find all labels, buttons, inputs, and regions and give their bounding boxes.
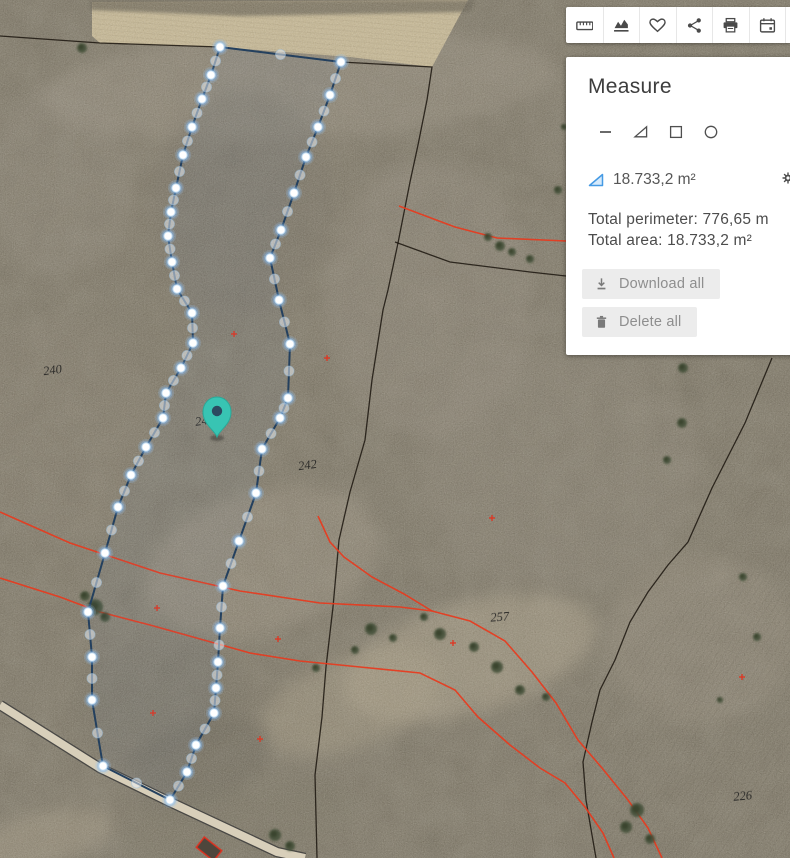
totals-block: Total perimeter: 776,65 m Total area: 18… [588, 209, 790, 251]
circle-tool-button[interactable] [703, 124, 719, 140]
polygon-vertex[interactable] [258, 445, 266, 453]
total-area: Total area: 18.733,2 m² [588, 230, 790, 251]
gear-icon[interactable] [781, 171, 790, 185]
polygon-midpoint-handle[interactable] [226, 559, 236, 569]
polygon-midpoint-handle[interactable] [270, 274, 280, 284]
elevation-chart-icon [613, 17, 630, 34]
polygon-vertex[interactable] [88, 653, 96, 661]
polygon-vertex[interactable] [189, 339, 197, 347]
toolbar-heart-button[interactable] [639, 7, 676, 43]
parcel-label-257: 257 [490, 609, 510, 624]
calendar-icon [759, 17, 776, 34]
polygon-vertex[interactable] [159, 414, 167, 422]
download-icon [594, 277, 609, 292]
polygon-vertex[interactable] [192, 741, 200, 749]
triangle-area-tool-button[interactable] [633, 124, 649, 140]
polygon-vertex[interactable] [179, 151, 187, 159]
measure-tools-row [598, 122, 790, 142]
polygon-midpoint-handle[interactable] [174, 781, 184, 791]
toolbar-elevation-chart-button[interactable] [603, 7, 640, 43]
total-area-value: 18.733,2 m² [667, 232, 752, 249]
polygon-midpoint-handle[interactable] [284, 366, 294, 376]
download-icon [594, 277, 609, 292]
polygon-midpoint-handle[interactable] [92, 578, 102, 588]
parcel-label-242: 242 [297, 457, 318, 473]
polygon-vertex[interactable] [216, 43, 224, 51]
polygon-vertex[interactable] [216, 624, 224, 632]
polygon-midpoint-handle[interactable] [180, 296, 190, 306]
polygon-midpoint-handle[interactable] [182, 351, 192, 361]
polygon-vertex[interactable] [284, 394, 292, 402]
polygon-vertex[interactable] [302, 153, 310, 161]
polygon-midpoint-handle[interactable] [107, 525, 117, 535]
polygon-midpoint-handle[interactable] [165, 244, 175, 254]
polygon-vertex[interactable] [173, 285, 181, 293]
total-perimeter: Total perimeter: 776,65 m [588, 209, 790, 230]
polygon-midpoint-handle[interactable] [243, 512, 253, 522]
polygon-vertex[interactable] [84, 608, 92, 616]
toolbar-ruler-button[interactable] [566, 7, 603, 43]
polygon-midpoint-handle[interactable] [214, 640, 224, 650]
polygon-midpoint-handle[interactable] [165, 219, 175, 229]
toolbar-calendar-button[interactable] [749, 7, 786, 43]
polygon-midpoint-handle[interactable] [280, 317, 290, 327]
polygon-vertex[interactable] [275, 296, 283, 304]
map-viewport: 24024242257226 Measure 18.733,2 m² Total… [0, 0, 790, 858]
polygon-vertex[interactable] [188, 309, 196, 317]
measure-panel: Measure 18.733,2 m² Total perimeter: 776… [566, 57, 790, 355]
polygon-midpoint-handle[interactable] [210, 696, 220, 706]
printer-icon [722, 17, 739, 34]
line-tool-icon [598, 124, 614, 140]
polygon-vertex[interactable] [88, 696, 96, 704]
measurement-value: 18.733,2 m² [613, 171, 696, 189]
polygon-midpoint-handle[interactable] [87, 674, 97, 684]
polygon-midpoint-handle[interactable] [331, 74, 341, 84]
parcel-label-226: 226 [733, 788, 754, 804]
polygon-midpoint-handle[interactable] [93, 728, 103, 738]
rectangle-tool-button[interactable] [668, 124, 684, 140]
polygon-midpoint-handle[interactable] [202, 82, 212, 92]
polygon-midpoint-handle[interactable] [212, 670, 222, 680]
polygon-vertex[interactable] [166, 796, 174, 804]
area-triangle-icon [588, 172, 604, 188]
polygon-midpoint-handle[interactable] [211, 56, 221, 66]
share-icon [686, 17, 703, 34]
toolbar-share-button[interactable] [676, 7, 713, 43]
polygon-vertex[interactable] [172, 184, 180, 192]
polygon-vertex[interactable] [114, 503, 122, 511]
panel-title: Measure [588, 75, 790, 99]
polygon-midpoint-handle[interactable] [132, 778, 142, 788]
polygon-vertex[interactable] [314, 123, 322, 131]
polygon-midpoint-handle[interactable] [217, 602, 227, 612]
polygon-vertex[interactable] [337, 58, 345, 66]
polygon-vertex[interactable] [252, 489, 260, 497]
polygon-midpoint-handle[interactable] [266, 429, 276, 439]
polygon-vertex[interactable] [286, 340, 294, 348]
polygon-midpoint-handle[interactable] [160, 401, 170, 411]
toolbar-printer-button[interactable] [712, 7, 749, 43]
polygon-midpoint-handle[interactable] [134, 456, 144, 466]
polygon-vertex[interactable] [276, 414, 284, 422]
polygon-midpoint-handle[interactable] [170, 271, 180, 281]
polygon-midpoint-handle[interactable] [187, 754, 197, 764]
polygon-vertex[interactable] [277, 226, 285, 234]
polygon-midpoint-handle[interactable] [192, 108, 202, 118]
map-toolbar [566, 7, 790, 43]
trash-icon [594, 315, 609, 330]
polygon-midpoint-handle[interactable] [169, 195, 179, 205]
polygon-midpoint-handle[interactable] [319, 106, 329, 116]
polygon-midpoint-handle[interactable] [175, 167, 185, 177]
polygon-vertex[interactable] [142, 443, 150, 451]
polygon-vertex[interactable] [210, 709, 218, 717]
polygon-vertex[interactable] [235, 537, 243, 545]
ruler-icon [576, 17, 593, 34]
polygon-vertex[interactable] [214, 658, 222, 666]
measurement-row[interactable]: 18.733,2 m² [588, 171, 790, 189]
polygon-vertex[interactable] [127, 471, 135, 479]
polygon-midpoint-handle[interactable] [85, 630, 95, 640]
line-tool-button[interactable] [598, 124, 614, 140]
polygon-midpoint-handle[interactable] [120, 486, 130, 496]
delete-all-button[interactable]: Delete all [582, 307, 697, 337]
polygon-midpoint-handle[interactable] [295, 170, 305, 180]
polygon-vertex[interactable] [198, 95, 206, 103]
circle-tool-icon [703, 124, 719, 140]
polygon-vertex[interactable] [168, 258, 176, 266]
heart-icon [649, 17, 666, 34]
polygon-midpoint-handle[interactable] [150, 428, 160, 438]
polygon-vertex[interactable] [99, 762, 107, 770]
polygon-vertex[interactable] [167, 208, 175, 216]
rectangle-tool-icon [668, 124, 684, 140]
polygon-midpoint-handle[interactable] [169, 376, 179, 386]
polygon-midpoint-handle[interactable] [283, 207, 293, 217]
polygon-midpoint-handle[interactable] [276, 50, 286, 60]
total-perimeter-value: 776,65 m [703, 211, 769, 228]
polygon-vertex[interactable] [266, 254, 274, 262]
polygon-vertex[interactable] [290, 189, 298, 197]
download-all-button[interactable]: Download all [582, 269, 720, 299]
polygon-midpoint-handle[interactable] [307, 137, 317, 147]
polygon-midpoint-handle[interactable] [271, 239, 281, 249]
polygon-vertex[interactable] [326, 91, 334, 99]
area-triangle-icon [588, 172, 604, 188]
toolbar-partial-cell [785, 7, 790, 43]
polygon-vertex[interactable] [207, 71, 215, 79]
polygon-midpoint-handle[interactable] [254, 466, 264, 476]
polygon-vertex[interactable] [164, 232, 172, 240]
gear-icon [781, 171, 790, 185]
parcel-label-240: 240 [42, 362, 63, 379]
polygon-vertex[interactable] [183, 768, 191, 776]
polygon-vertex[interactable] [101, 549, 109, 557]
polygon-midpoint-handle[interactable] [200, 724, 210, 734]
polygon-midpoint-handle[interactable] [188, 323, 198, 333]
polygon-vertex[interactable] [162, 389, 170, 397]
polygon-midpoint-handle[interactable] [183, 136, 193, 146]
polygon-vertex[interactable] [219, 582, 227, 590]
polygon-vertex[interactable] [188, 123, 196, 131]
polygon-vertex[interactable] [177, 364, 185, 372]
triangle-area-tool-icon [633, 124, 649, 140]
trash-icon [594, 315, 609, 330]
polygon-vertex[interactable] [212, 684, 220, 692]
